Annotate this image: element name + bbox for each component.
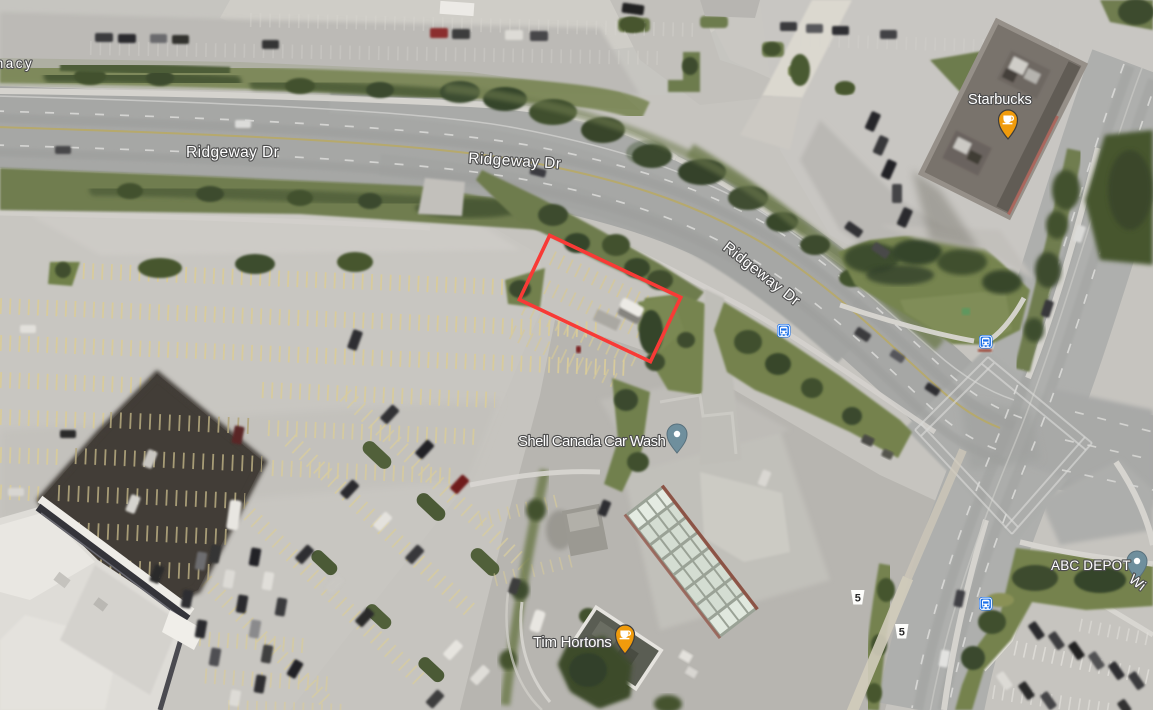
svg-text:5: 5 bbox=[899, 627, 905, 639]
svg-text:Starbucks: Starbucks bbox=[968, 92, 1032, 108]
svg-text:Shell Canada Car Wash: Shell Canada Car Wash bbox=[518, 433, 666, 450]
svg-text:macy: macy bbox=[0, 56, 32, 71]
svg-text:ABC DEPOT: ABC DEPOT bbox=[1051, 558, 1131, 573]
svg-text:5: 5 bbox=[855, 593, 861, 605]
svg-text:Ridgeway Dr: Ridgeway Dr bbox=[186, 144, 279, 161]
svg-text:Tim Hortons: Tim Hortons bbox=[533, 634, 612, 651]
